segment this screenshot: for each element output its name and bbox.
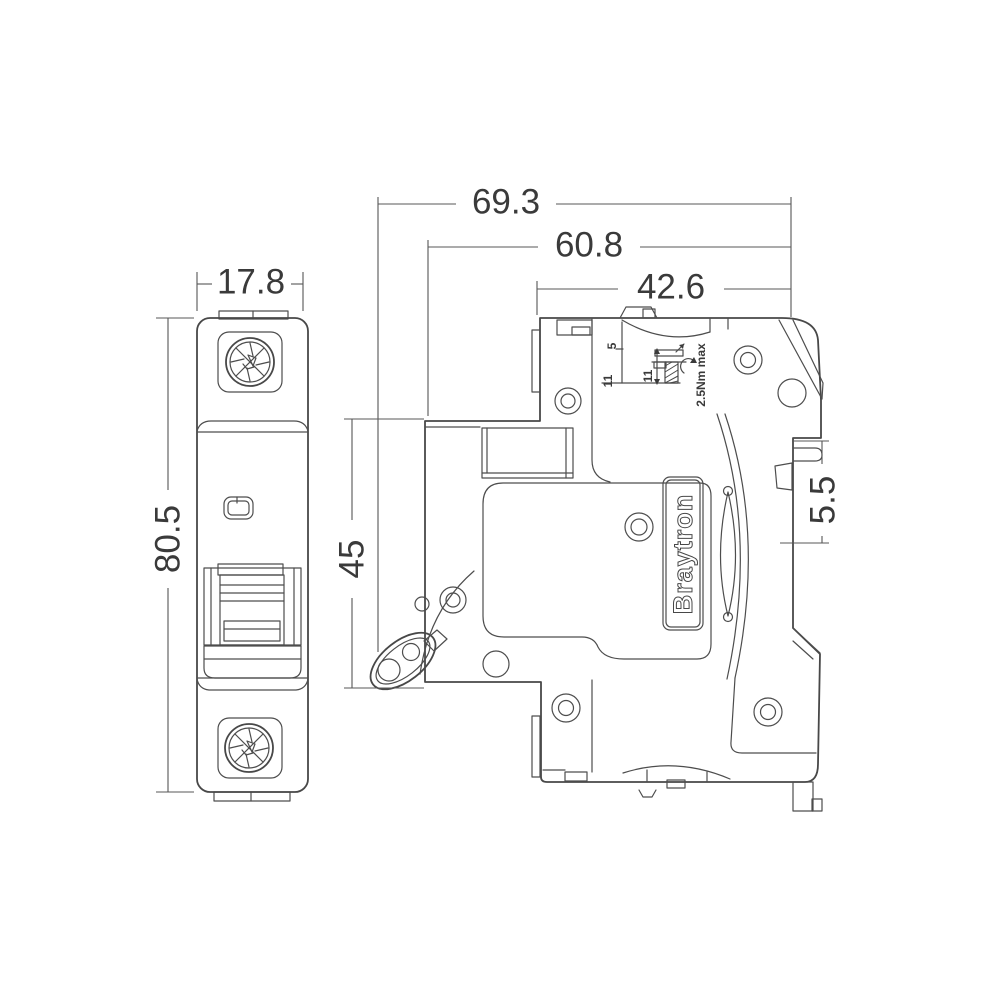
front-view xyxy=(197,311,308,801)
din-rail-features xyxy=(775,320,823,811)
pin-hole-bottom xyxy=(483,651,509,677)
din-clip-foot xyxy=(793,782,813,811)
side-upper-seam xyxy=(592,318,610,482)
technical-drawing: 5 11 11 2.5Nm max B xyxy=(0,0,1000,1000)
rivets xyxy=(440,346,782,726)
dim-front-width: 17.8 xyxy=(197,263,303,312)
molding-arcs xyxy=(717,414,816,753)
dim-top-depth: 42.6 xyxy=(537,268,791,316)
front-lower-screw-icon xyxy=(218,718,282,778)
front-bottom-cap xyxy=(214,792,290,801)
dim-body-depth-value: 60.8 xyxy=(555,226,623,265)
dim-front-height: 80.5 xyxy=(149,318,195,792)
side-view: 5 11 11 2.5Nm max B xyxy=(361,307,823,811)
dim-total-depth-value: 69.3 xyxy=(472,183,540,222)
pin-hole-top xyxy=(778,379,806,407)
brand-plate: Braytron xyxy=(663,477,703,630)
dim-front-width-value: 17.8 xyxy=(217,263,285,302)
front-lower-seam xyxy=(197,678,308,690)
dim-top-depth-value: 42.6 xyxy=(637,268,705,307)
front-upper-seam xyxy=(197,421,308,432)
side-left-strip-bottom xyxy=(532,716,540,777)
side-outline xyxy=(425,318,821,782)
side-left-strip-top xyxy=(532,330,540,392)
screw-hatching xyxy=(665,362,678,383)
dim-front-section-height-value: 45 xyxy=(333,540,372,579)
screw-length-label: 11 xyxy=(641,369,655,382)
drawing-canvas: 5 11 11 2.5Nm max B xyxy=(0,0,1000,1000)
side-toggle-recess xyxy=(482,428,573,478)
lens-cutout xyxy=(721,487,736,622)
dim-din-recess: 5.5 xyxy=(780,441,843,543)
terminal-screw-detail xyxy=(652,344,697,385)
dimension-annotations: 17.8 80.5 69.3 60.8 xyxy=(149,183,843,793)
terminal-depth-lower-label: 11 xyxy=(601,374,615,387)
din-latch-tab xyxy=(775,463,792,490)
torque-arc-icon xyxy=(681,359,693,373)
dim-din-recess-value: 5.5 xyxy=(804,476,843,525)
lever-travel-arc xyxy=(420,571,474,674)
front-upper-screw-icon xyxy=(218,332,282,392)
front-indicator-window xyxy=(224,497,253,519)
torque-label: 2.5Nm max xyxy=(694,343,708,407)
front-toggle-handle xyxy=(204,564,301,678)
dim-front-height-value: 80.5 xyxy=(149,505,188,573)
terminal-depth-upper-label: 5 xyxy=(605,342,619,349)
din-notch xyxy=(793,448,822,461)
side-bottom-details xyxy=(543,680,730,797)
brand-label: Braytron xyxy=(668,494,698,615)
front-body xyxy=(197,318,308,792)
